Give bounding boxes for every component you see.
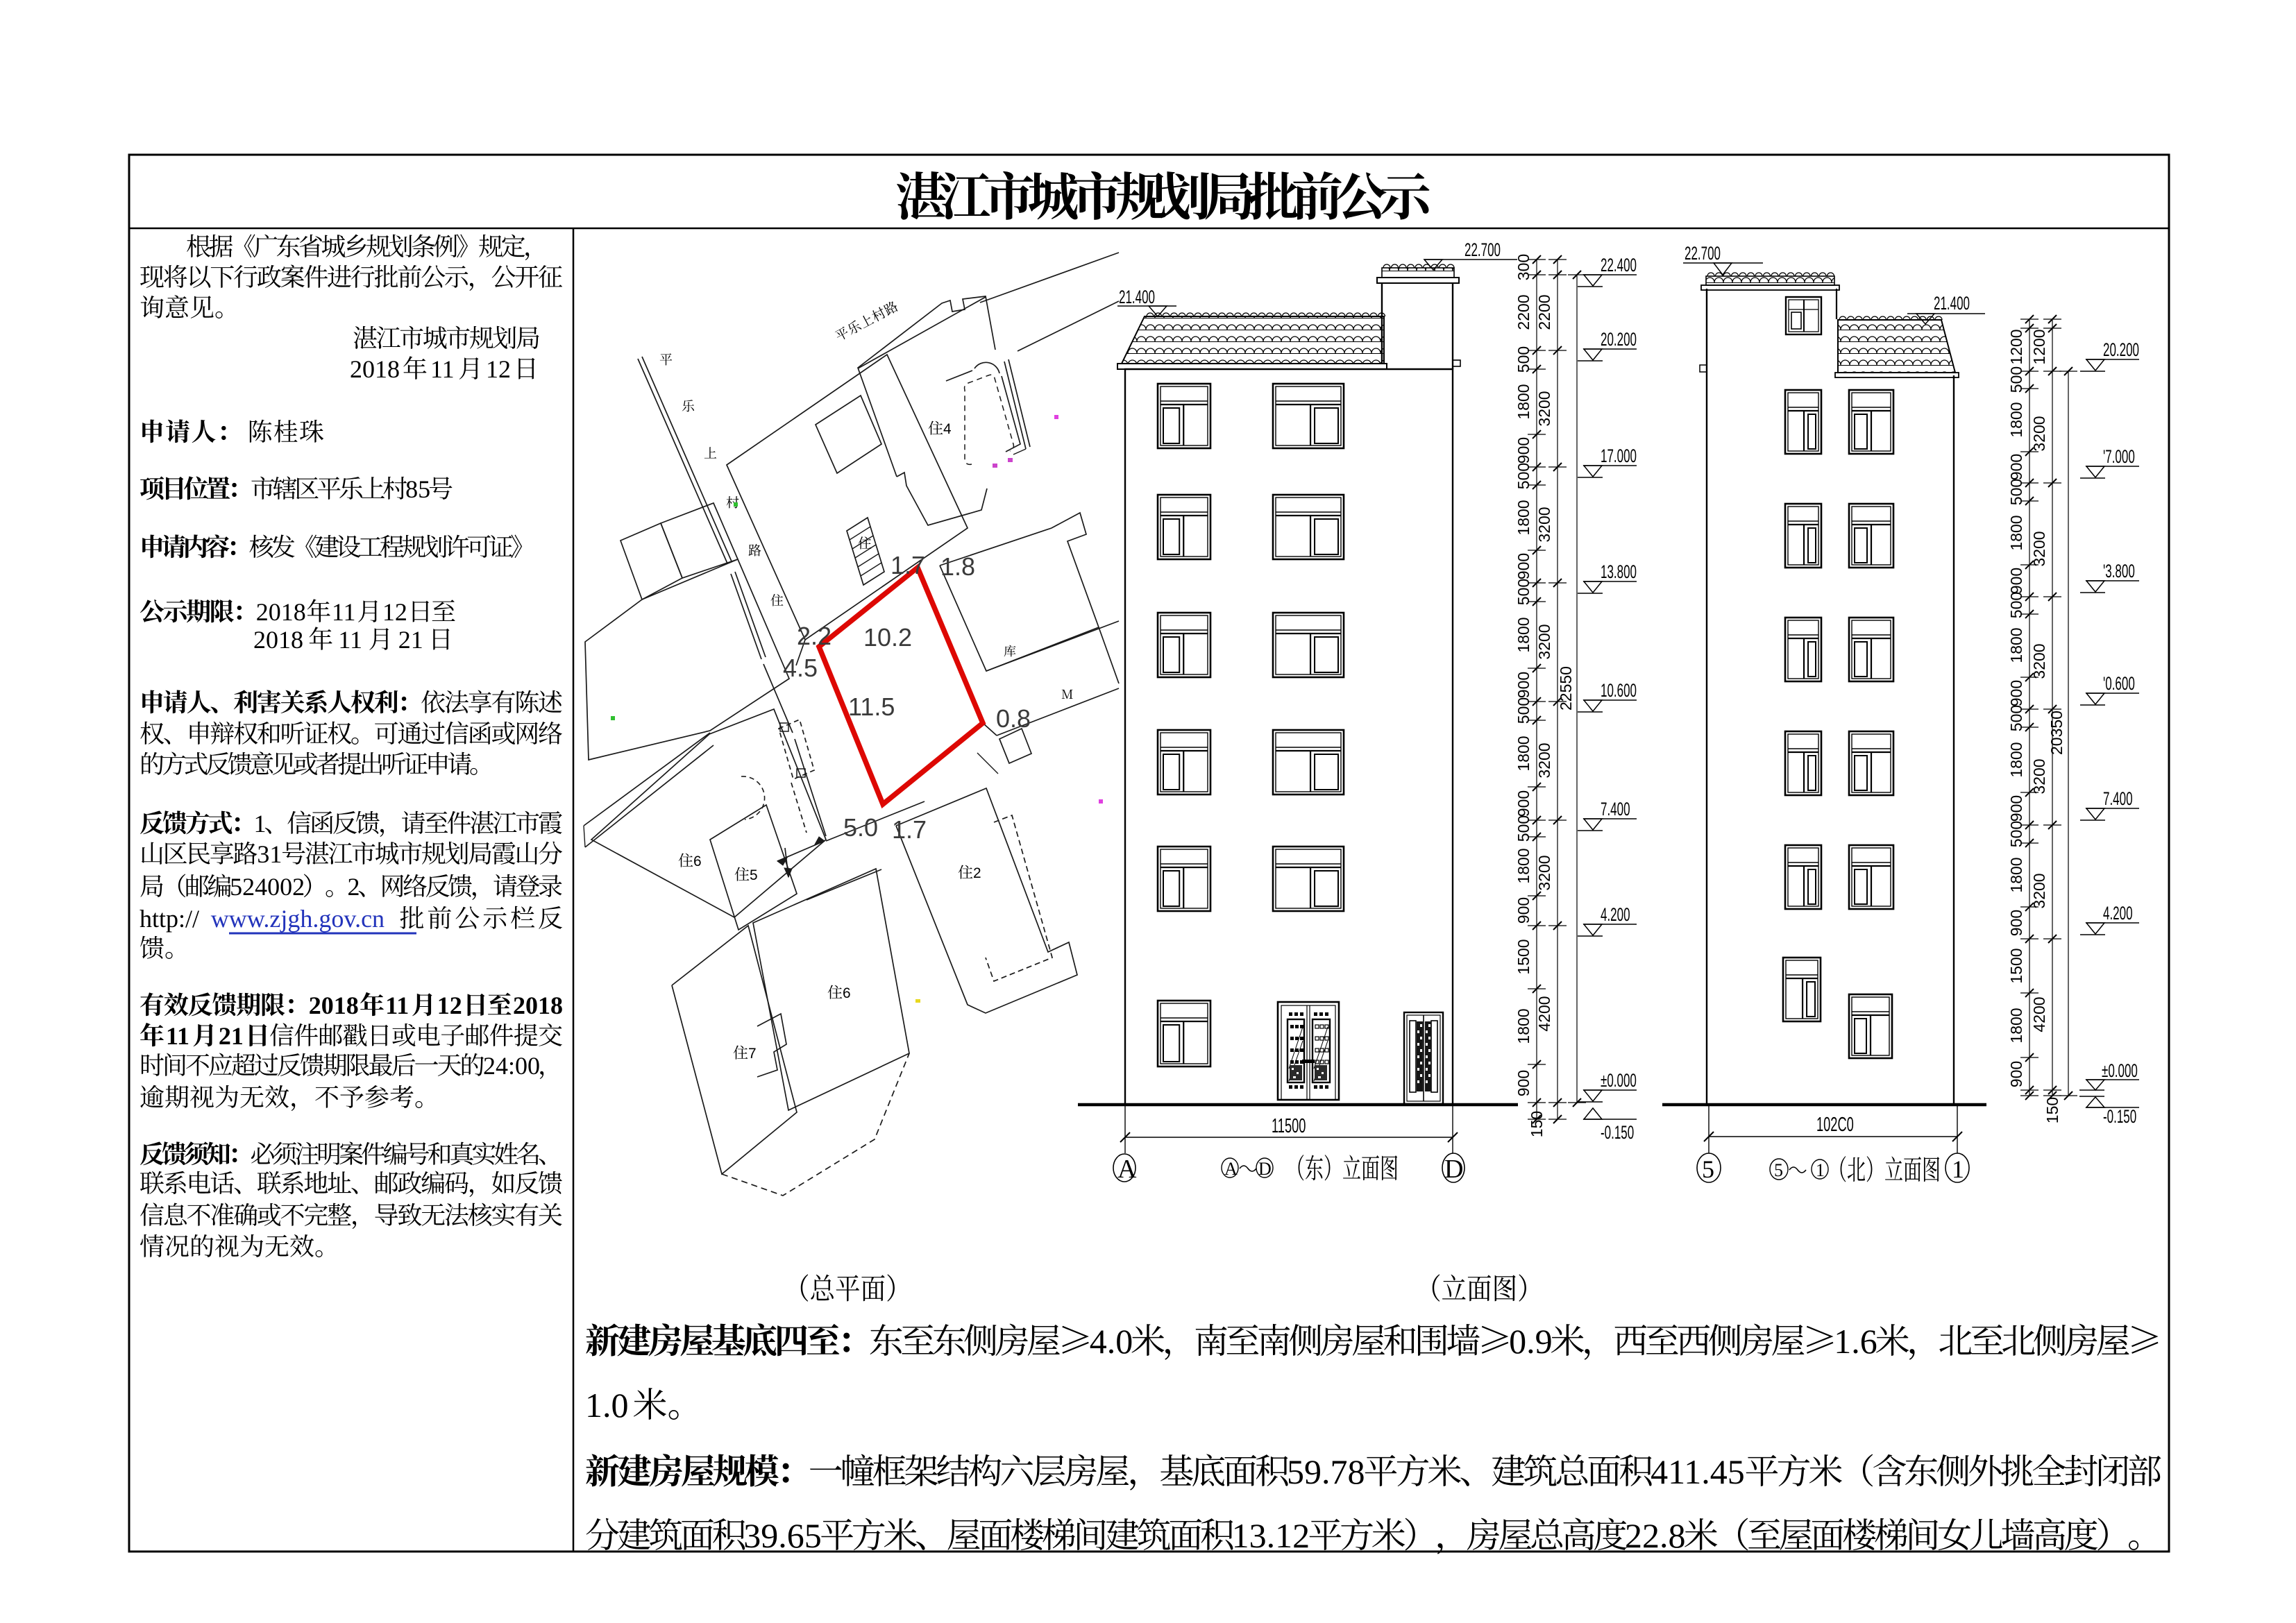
svg-text:'7.000: '7.000 [2103, 446, 2135, 467]
svg-text:20.200: 20.200 [2103, 339, 2139, 360]
svg-text:2: 2 [348, 873, 360, 901]
svg-text:11500: 11500 [1272, 1115, 1306, 1137]
svg-text:4200: 4200 [2030, 996, 2048, 1032]
svg-text:5.0: 5.0 [843, 813, 878, 842]
svg-text:1800: 1800 [2007, 627, 2025, 663]
svg-text:1200: 1200 [2007, 329, 2025, 364]
svg-text:0.8: 0.8 [996, 704, 1031, 733]
svg-text:900: 900 [2007, 680, 2025, 706]
svg-text:D: D [1258, 1159, 1272, 1179]
svg-text:12: 12 [382, 598, 407, 626]
svg-text:1800: 1800 [1514, 848, 1533, 883]
svg-text:1: 1 [1816, 1160, 1825, 1180]
svg-text:'3.800: '3.800 [2103, 561, 2135, 581]
svg-text:13.12: 13.12 [1232, 1516, 1310, 1555]
svg-text:5: 5 [1774, 1160, 1783, 1180]
svg-text:http://: http:// [140, 905, 199, 933]
svg-text:24:00: 24:00 [483, 1052, 540, 1080]
svg-text:500: 500 [2007, 479, 2025, 505]
svg-text:4.200: 4.200 [1601, 904, 1630, 925]
svg-text:500: 500 [1514, 463, 1533, 489]
svg-text:6: 6 [843, 985, 851, 1001]
svg-text:900: 900 [1514, 553, 1533, 579]
svg-text:11.5: 11.5 [848, 692, 895, 721]
svg-text:500: 500 [2007, 592, 2025, 618]
svg-text:21.400: 21.400 [1934, 293, 1970, 314]
svg-text:0.9: 0.9 [1509, 1322, 1553, 1361]
svg-text:1: 1 [1952, 1155, 1964, 1183]
svg-text:3200: 3200 [2030, 416, 2048, 451]
svg-text:1800: 1800 [2007, 742, 2025, 777]
svg-text:4.200: 4.200 [2103, 903, 2133, 924]
svg-text:59.78: 59.78 [1287, 1452, 1365, 1491]
svg-text:2018: 2018 [513, 992, 563, 1019]
svg-text:3200: 3200 [1535, 742, 1553, 778]
svg-text:11: 11 [332, 598, 356, 626]
svg-text:20350: 20350 [2048, 711, 2066, 755]
svg-text:D: D [1444, 1155, 1463, 1184]
svg-text:1800: 1800 [2007, 1008, 2025, 1043]
svg-text:524002: 524002 [230, 873, 305, 901]
svg-text:3200: 3200 [1535, 855, 1553, 890]
svg-text:900: 900 [2007, 454, 2025, 480]
svg-text:1800: 1800 [1514, 384, 1533, 419]
svg-text:500: 500 [1514, 815, 1533, 842]
svg-text:A: A [1117, 1155, 1137, 1184]
svg-text:4: 4 [943, 421, 952, 437]
svg-text:3200: 3200 [1535, 624, 1553, 659]
svg-text:900: 900 [1514, 1070, 1533, 1096]
svg-text:1800: 1800 [1514, 736, 1533, 771]
svg-text:7.400: 7.400 [2103, 788, 2133, 809]
svg-text:1200: 1200 [2030, 329, 2048, 364]
svg-text:A: A [1224, 1159, 1238, 1179]
svg-text:300: 300 [1514, 254, 1533, 280]
svg-text:22.8: 22.8 [1625, 1516, 1686, 1555]
svg-text:-0.150: -0.150 [2103, 1106, 2136, 1127]
svg-text:1.7: 1.7 [890, 551, 925, 579]
svg-text:900: 900 [2007, 1061, 2025, 1087]
svg-text:4200: 4200 [1535, 996, 1553, 1031]
svg-text:500: 500 [2007, 366, 2025, 393]
svg-text:6: 6 [693, 853, 702, 869]
svg-text:900: 900 [1514, 790, 1533, 817]
svg-text:11: 11 [430, 355, 455, 383]
svg-text:'0.600: '0.600 [2103, 673, 2135, 694]
svg-text:1800: 1800 [1514, 1008, 1533, 1044]
svg-text:21.400: 21.400 [1119, 287, 1155, 307]
svg-text:3200: 3200 [2030, 758, 2048, 794]
svg-text:1800: 1800 [1514, 500, 1533, 535]
svg-text:3200: 3200 [2030, 643, 2048, 679]
svg-text:500: 500 [1514, 579, 1533, 605]
svg-text:85: 85 [405, 475, 430, 503]
svg-text:2200: 2200 [1535, 294, 1553, 330]
svg-text:22.700: 22.700 [1464, 239, 1501, 260]
svg-text:1800: 1800 [2007, 857, 2025, 892]
svg-text:2.2: 2.2 [797, 622, 832, 650]
svg-text:150: 150 [1528, 1111, 1546, 1137]
svg-text:1.0: 1.0 [585, 1386, 629, 1425]
svg-text:1.8: 1.8 [940, 552, 975, 581]
svg-text:150: 150 [2043, 1097, 2061, 1123]
svg-text:7.400: 7.400 [1601, 799, 1630, 819]
svg-text:17.000: 17.000 [1601, 445, 1637, 466]
svg-text:900: 900 [1514, 437, 1533, 464]
svg-text:2018: 2018 [253, 626, 303, 654]
svg-text:10.600: 10.600 [1601, 680, 1637, 701]
svg-text:1500: 1500 [2007, 948, 2025, 983]
svg-text:900: 900 [2007, 910, 2025, 936]
svg-text:-0.150: -0.150 [1601, 1122, 1634, 1143]
svg-text:21: 21 [219, 1022, 244, 1050]
svg-text:2200: 2200 [1514, 294, 1533, 330]
svg-text:1.7: 1.7 [892, 815, 927, 844]
svg-text:3200: 3200 [1535, 507, 1553, 542]
svg-text:500: 500 [2007, 705, 2025, 731]
svg-text:22550: 22550 [1557, 666, 1575, 711]
svg-text:39.65: 39.65 [743, 1516, 822, 1555]
svg-text:21: 21 [398, 626, 423, 654]
svg-text:22.700: 22.700 [1685, 243, 1721, 264]
svg-text:500: 500 [2007, 821, 2025, 847]
svg-text:www.zjgh.gov.cn: www.zjgh.gov.cn [211, 905, 385, 933]
svg-text:900: 900 [2007, 795, 2025, 822]
svg-text:5: 5 [750, 867, 758, 883]
svg-text:2018: 2018 [309, 992, 359, 1019]
svg-text:1: 1 [253, 810, 266, 838]
svg-text:411.45: 411.45 [1651, 1452, 1745, 1491]
svg-text:±0.000: ±0.000 [2102, 1060, 2138, 1081]
svg-text:1.6: 1.6 [1834, 1322, 1877, 1361]
svg-text:1800: 1800 [2007, 402, 2025, 437]
svg-text:11: 11 [166, 1022, 189, 1050]
svg-text:±0.000: ±0.000 [1601, 1070, 1637, 1091]
svg-text:11: 11 [338, 626, 362, 654]
svg-text:900: 900 [1514, 672, 1533, 698]
svg-text:102C0: 102C0 [1816, 1114, 1854, 1136]
svg-text:2018: 2018 [256, 598, 306, 626]
svg-text:900: 900 [2007, 568, 2025, 594]
svg-text:3200: 3200 [1535, 391, 1553, 426]
svg-text:12: 12 [437, 992, 462, 1019]
svg-text:31: 31 [257, 840, 282, 868]
svg-text:1500: 1500 [1514, 939, 1533, 974]
svg-text:22.400: 22.400 [1601, 255, 1637, 275]
svg-text:500: 500 [1514, 346, 1533, 373]
svg-text:2018: 2018 [350, 355, 400, 383]
svg-text:1800: 1800 [2007, 515, 2025, 550]
svg-text:900: 900 [1514, 897, 1533, 924]
svg-text:10.2: 10.2 [863, 623, 912, 652]
svg-text:12: 12 [486, 355, 511, 383]
svg-text:2: 2 [973, 865, 981, 881]
svg-text:500: 500 [1514, 697, 1533, 724]
svg-text:1800: 1800 [1514, 617, 1533, 652]
svg-text:5: 5 [1702, 1155, 1714, 1183]
svg-text:4.5: 4.5 [783, 654, 818, 682]
svg-text:11: 11 [385, 992, 409, 1019]
svg-text:7: 7 [748, 1046, 757, 1062]
svg-text:3200: 3200 [2030, 873, 2048, 908]
svg-text:20.200: 20.200 [1601, 329, 1637, 350]
svg-text:13.800: 13.800 [1601, 561, 1637, 582]
svg-text:4.0: 4.0 [1090, 1322, 1133, 1361]
svg-text:3200: 3200 [2030, 531, 2048, 566]
